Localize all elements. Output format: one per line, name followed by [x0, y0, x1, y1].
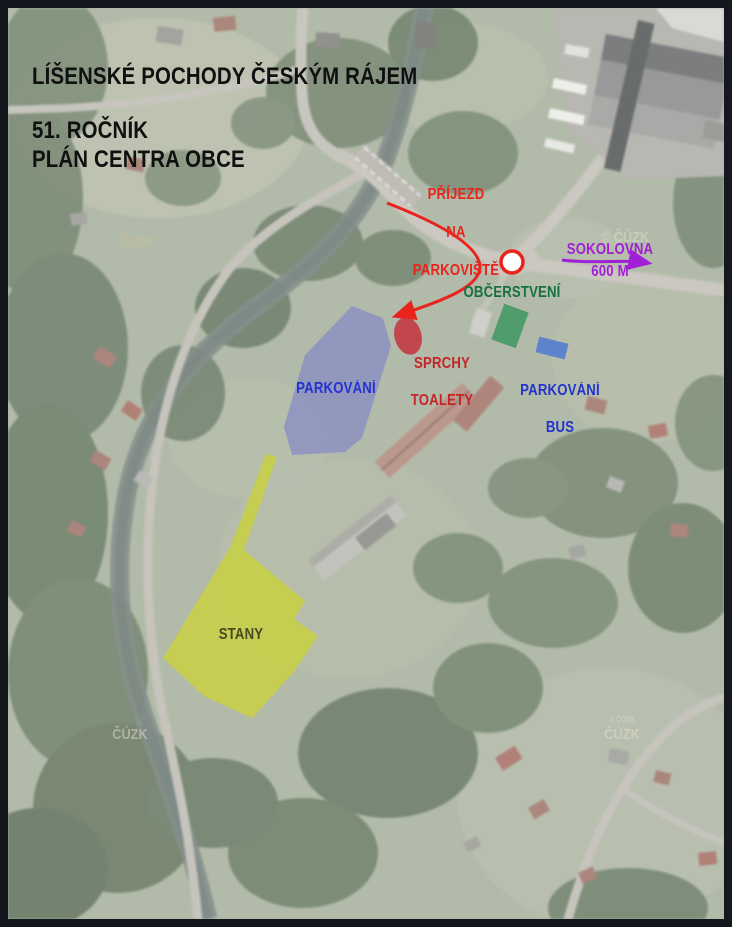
parking-zone-polygon	[284, 306, 391, 455]
sokolovna-direction-arrow	[562, 260, 648, 263]
tents-zone-polygon	[163, 454, 318, 718]
refreshments-marker-rect	[491, 304, 528, 349]
showers-marker-ellipse	[390, 314, 426, 358]
plan-overlays	[8, 8, 724, 919]
map-poster: LÍŠENSKÉ POCHODY ČESKÝM RÁJEM 51. ROČNÍK…	[0, 0, 732, 927]
aerial-map	[8, 8, 724, 919]
bus-parking-marker-rect	[536, 337, 569, 360]
arrival-route-arrow	[387, 203, 480, 316]
junction-circle-marker	[501, 251, 523, 273]
